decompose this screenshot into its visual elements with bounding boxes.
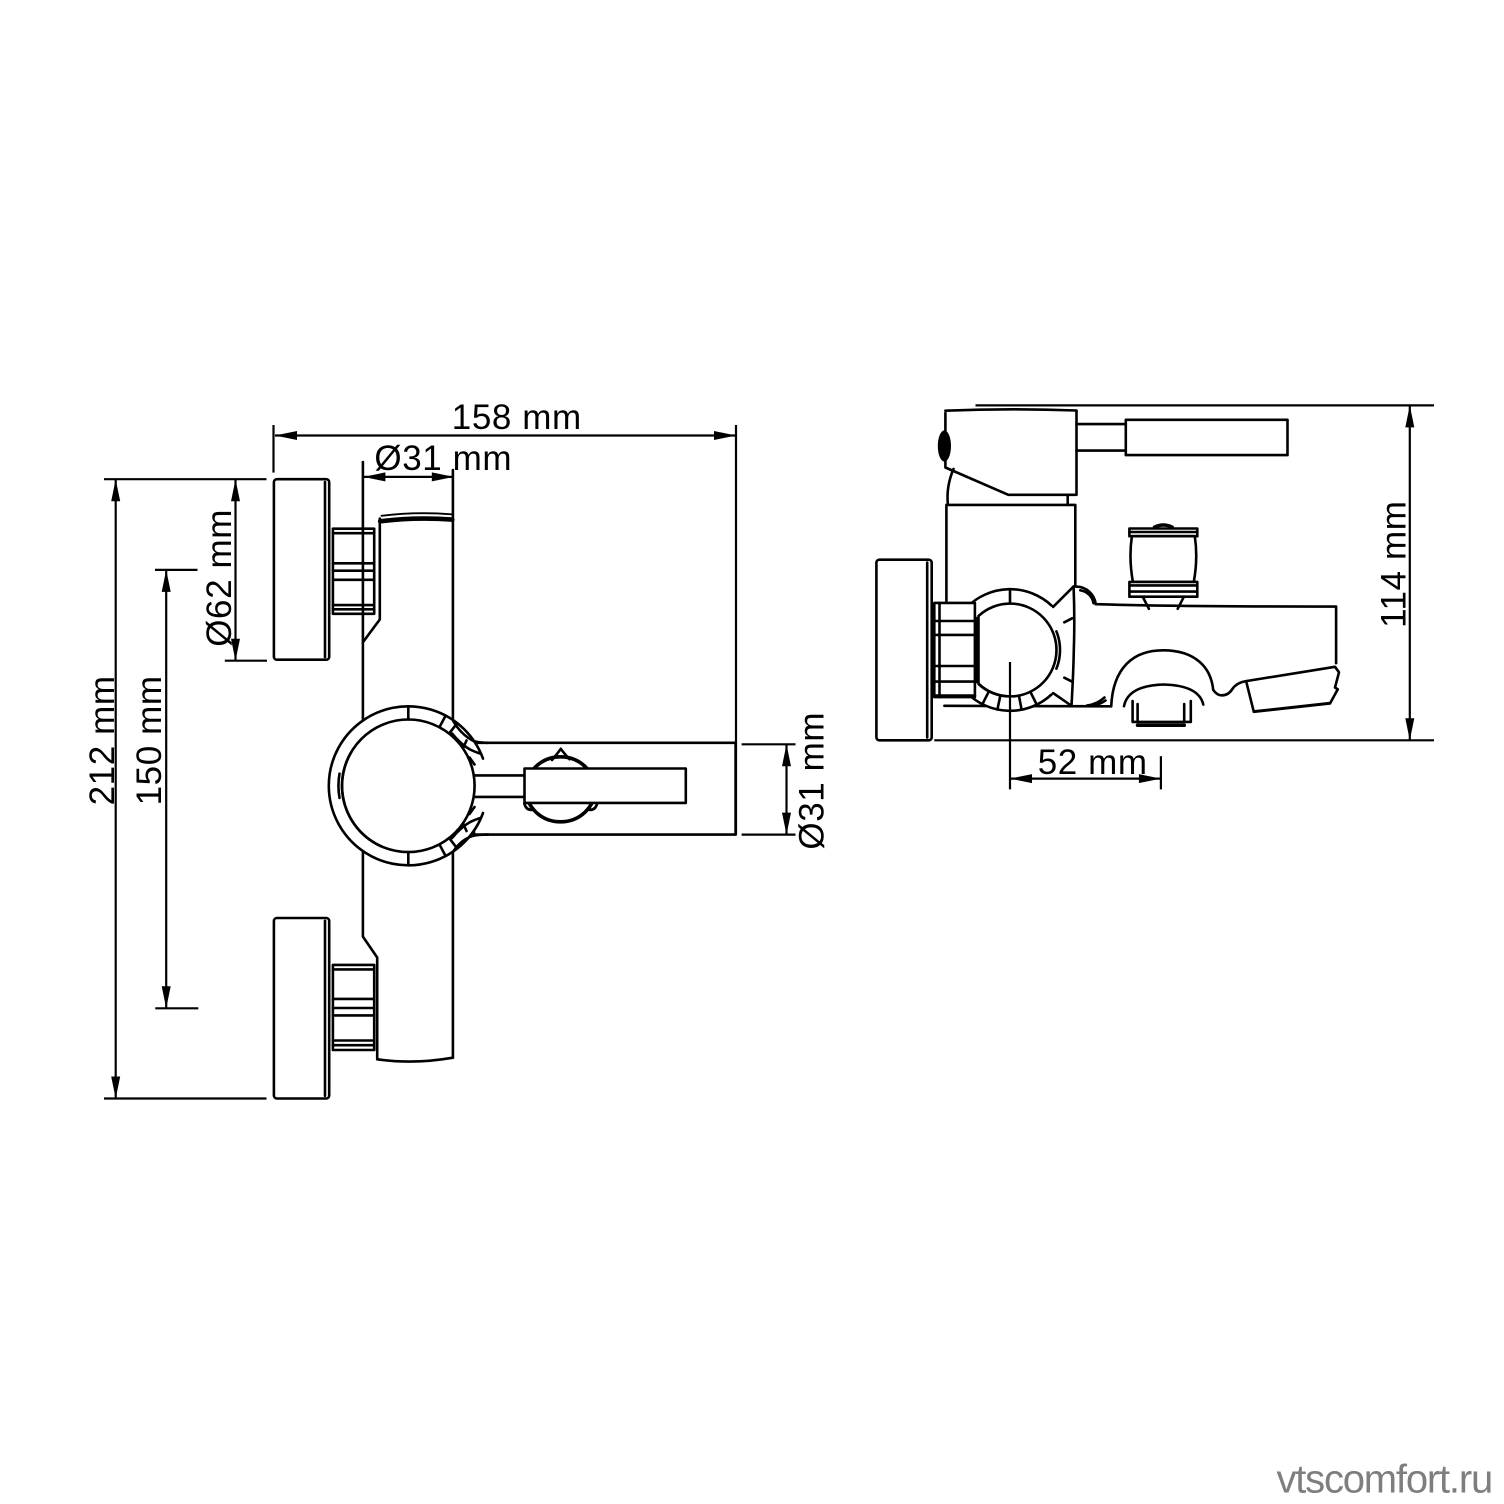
svg-text:Ø62 mm: Ø62 mm <box>200 509 239 647</box>
svg-text:Ø31 mm: Ø31 mm <box>792 712 831 850</box>
svg-text:Ø31 mm: Ø31 mm <box>374 439 512 478</box>
svg-text:vtscomfort.ru: vtscomfort.ru <box>1276 1458 1492 1502</box>
svg-text:212 mm: 212 mm <box>83 675 122 805</box>
svg-text:150 mm: 150 mm <box>130 675 169 805</box>
svg-text:114 mm: 114 mm <box>1375 500 1414 627</box>
svg-text:52 mm: 52 mm <box>1038 743 1148 782</box>
svg-text:158 mm: 158 mm <box>452 398 582 437</box>
